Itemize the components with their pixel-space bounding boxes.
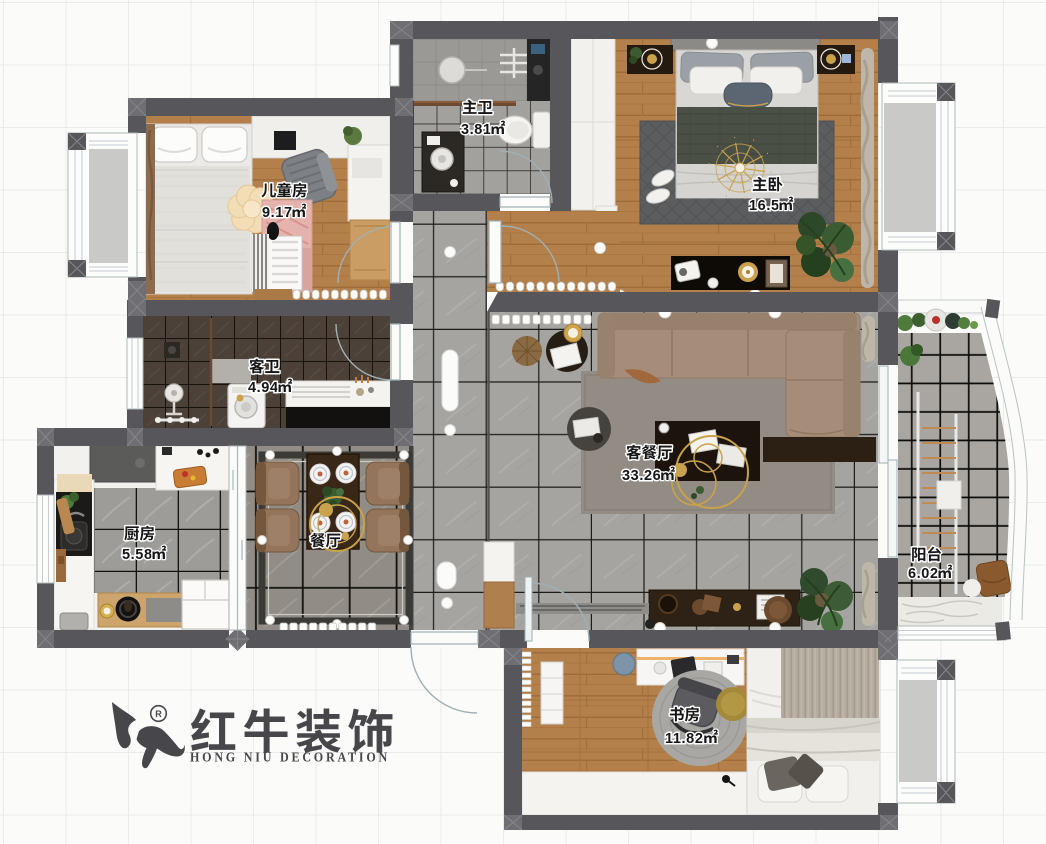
svg-text:16.5: 16.5 [749, 198, 780, 214]
svg-text:3.81: 3.81 [461, 122, 492, 138]
svg-text:9.17: 9.17 [262, 205, 293, 221]
svg-text:4.94: 4.94 [248, 380, 279, 396]
svg-text:R: R [155, 709, 162, 719]
svg-text:6.02: 6.02 [908, 566, 939, 582]
svg-text:11.82: 11.82 [665, 731, 704, 747]
svg-text:33.26: 33.26 [622, 468, 661, 484]
svg-text:5.58: 5.58 [122, 547, 153, 563]
svg-text:HONG NIU DECORATION: HONG NIU DECORATION [190, 750, 390, 765]
